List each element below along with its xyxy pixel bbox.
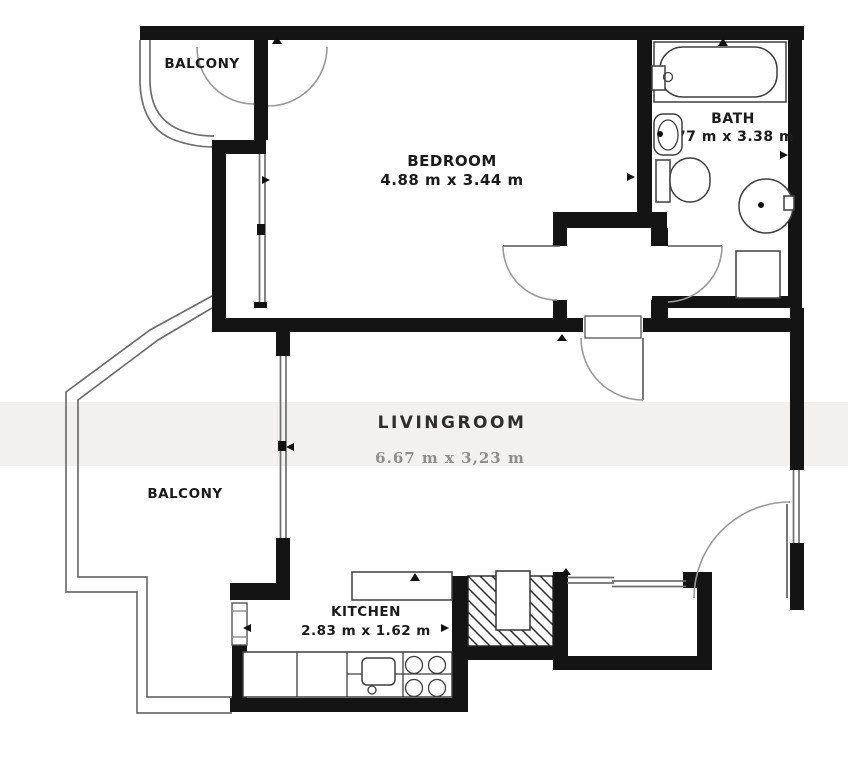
wall-hall-north <box>553 212 667 228</box>
bedroom-dims: 4.88 m x 3.44 m <box>380 171 523 189</box>
bath-fixtures <box>652 42 786 102</box>
wall-hall-west-upper <box>553 228 567 246</box>
wall-hall-east-upper <box>651 228 668 246</box>
livingroom-label: LIVINGROOM <box>378 413 527 433</box>
wall-north <box>140 26 804 40</box>
wall-livingroom-east-upper <box>790 308 804 470</box>
wall-entry-south <box>553 656 712 670</box>
livingroom-west-window <box>278 356 286 538</box>
floorplan-page: BATH 1.77 m x 3.38 m <box>0 0 848 762</box>
livingroom-dims: 6.67 m x 3,23 m <box>375 449 525 467</box>
shower-tray <box>736 251 780 298</box>
wall-livingroom-north-right <box>643 318 804 332</box>
wall-livingroom-north-left <box>212 318 583 332</box>
hall-bath-door <box>668 246 722 302</box>
wall-kitchen-east <box>452 576 468 712</box>
toilet <box>656 158 710 202</box>
floorplan-canvas: BATH 1.77 m x 3.38 m <box>0 0 848 762</box>
kitchen-label: KITCHEN <box>331 604 401 620</box>
kitchen-dims: 2.83 m x 1.62 m <box>301 623 431 639</box>
wall-bedroom-west <box>212 140 226 332</box>
wall-bath-east <box>788 26 802 308</box>
wash-basin <box>654 114 682 155</box>
wall-livingroom-west-stub-top <box>276 332 290 356</box>
bath-label: BATH <box>711 111 755 127</box>
shaft-duct-box <box>496 571 530 630</box>
wall-livingroom-west-stub-bottom <box>276 538 290 588</box>
kitchen-west-window <box>232 603 247 645</box>
wall-entry-east <box>697 574 712 670</box>
wall-kitchen-northwest <box>230 583 290 600</box>
hall-bedroom-door <box>503 246 560 300</box>
bedroom-label: BEDROOM <box>407 152 497 170</box>
balcony-left-label: BALCONY <box>147 486 222 502</box>
balcony-top-label: BALCONY <box>164 56 239 72</box>
bathtub <box>660 47 777 97</box>
room-labels: BALCONY BEDROOM 4.88 m x 3.44 m LIVINGRO… <box>147 56 526 639</box>
wall-kitchen-south <box>230 698 468 712</box>
livingroom-south-window <box>567 578 686 587</box>
ventilation-shaft <box>468 571 553 646</box>
bedroom-west-window <box>254 154 267 308</box>
wall-balcony-bedroom <box>254 40 268 140</box>
hall-livingroom-door <box>581 316 643 400</box>
washing-machine <box>739 179 794 233</box>
wall-bedroom-bath <box>637 40 652 212</box>
livingroom-east-window <box>794 470 800 543</box>
balcony-left-outline <box>66 296 232 713</box>
kitchen-top-counter <box>352 572 452 600</box>
wall-livingroom-east-lower <box>790 543 804 610</box>
